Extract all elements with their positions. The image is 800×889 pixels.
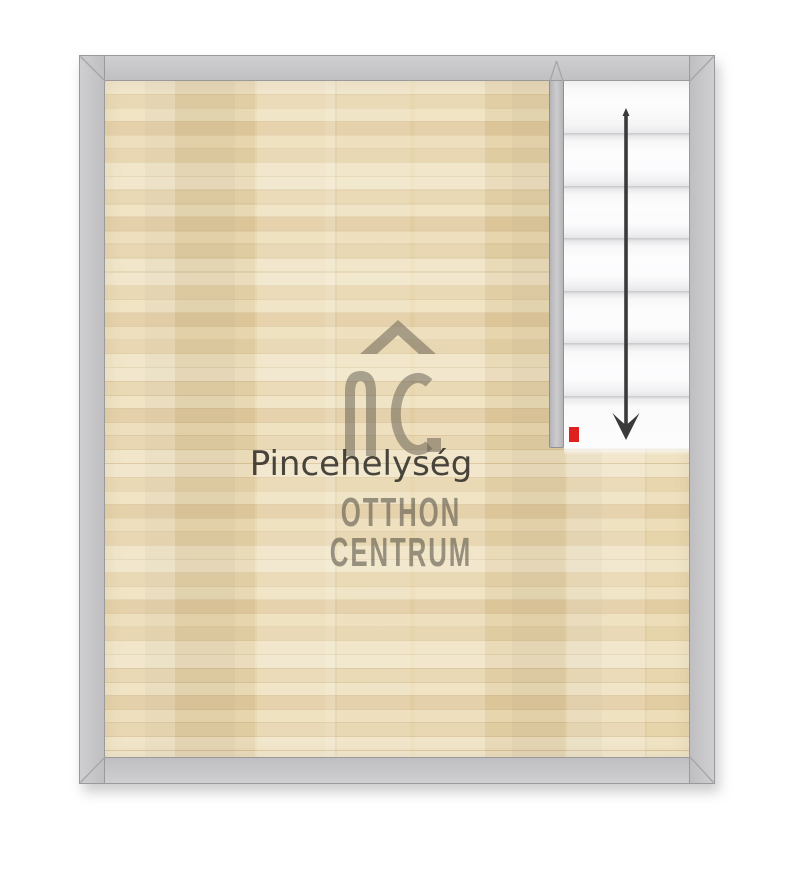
stair-tread [564,81,690,133]
brand-watermark: OTTHON CENTRUM [261,492,541,572]
stair-divider-wall [549,81,564,448]
brand-line-2: CENTRUM [313,532,489,572]
outer-wall-bottom [79,757,715,784]
stair-tread [564,291,690,343]
staircase-bottom-fade [564,448,690,455]
stair-tread [564,186,690,238]
staircase [564,81,690,448]
outer-wall-right [689,55,715,784]
brand-line-1: OTTHON [313,492,489,532]
stair-tread [564,133,690,185]
outer-wall-left [79,55,105,784]
room-label: Pincehelység [236,443,486,485]
stair-tread [564,238,690,290]
outer-wall-top [79,55,715,81]
stair-tread [564,343,690,395]
floorplan-canvas: Pincehelység OTTHON CENTRUM [0,0,800,889]
stair-landing [564,396,690,448]
